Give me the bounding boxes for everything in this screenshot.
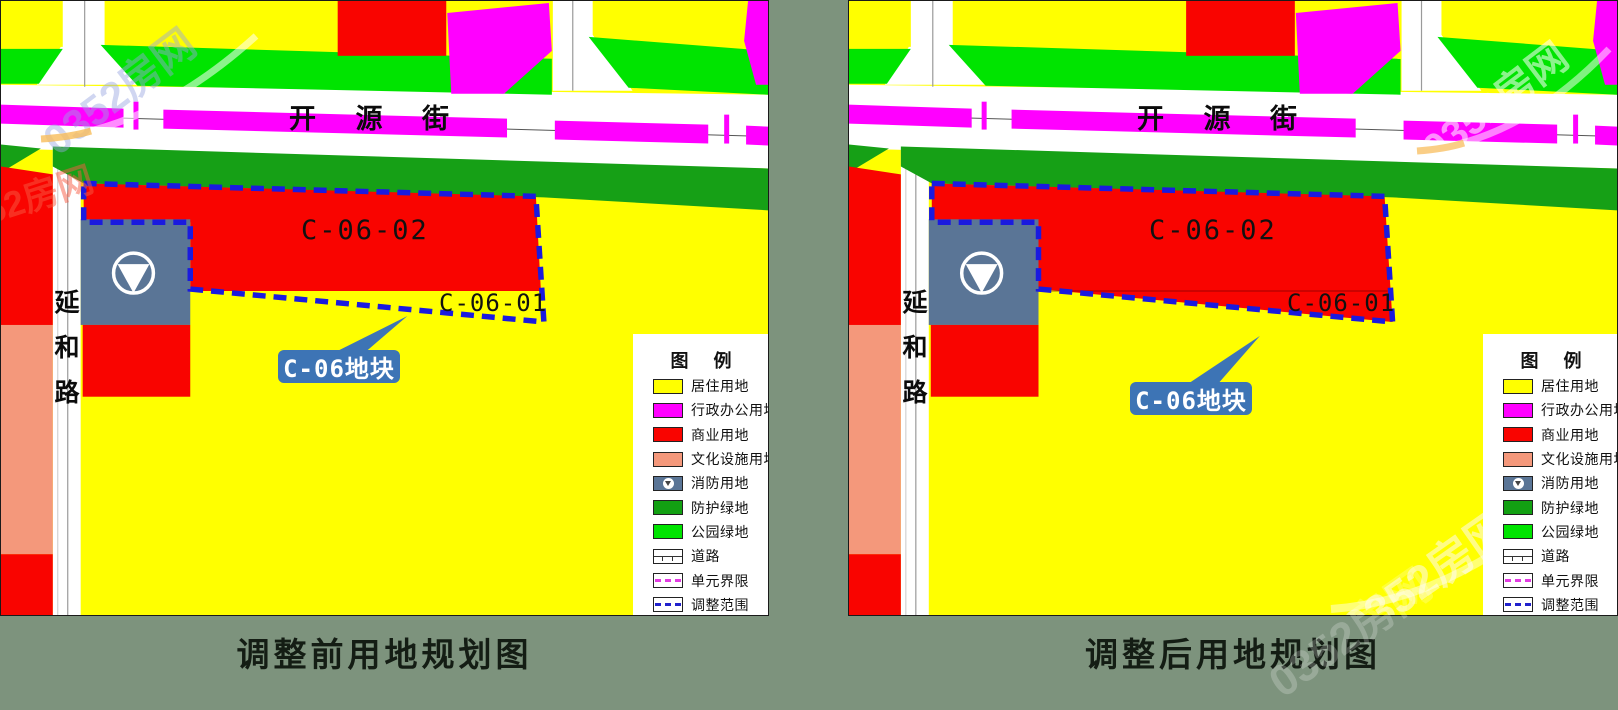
commercial-swatch	[1503, 427, 1533, 442]
park-green-swatch	[1503, 524, 1533, 539]
road-swatch	[653, 549, 683, 564]
legend-item-road: 道路	[633, 544, 769, 568]
legend-box: 图 例 居住用地 行政办公用地 商业用地 文化设施用地 消防用地 防护绿地	[633, 334, 769, 616]
admin-office-swatch	[1503, 403, 1533, 418]
legend-item-unit-boundary: 单元界限	[633, 568, 769, 592]
cultural-swatch	[1503, 452, 1533, 467]
planning-map-comparison: { "map": { "street_label": "开 源 街", "roa…	[0, 0, 1618, 681]
map-panel-after: 0352房网 0352房网 开 源 街 延和路 C-06-02 C-06-01 …	[848, 0, 1618, 616]
parcel-label-c0601: C-06-01	[1287, 289, 1395, 317]
legend-item-admin-office: 行政办公用地	[1483, 398, 1618, 422]
protective-green-swatch	[1503, 500, 1533, 515]
street-label-kaiyuan: 开 源 街	[289, 97, 465, 136]
parcel-callout: C-06地块	[278, 350, 400, 383]
legend-item-cultural: 文化设施用地	[1483, 447, 1618, 471]
street-label-kaiyuan: 开 源 街	[1137, 97, 1313, 136]
residential-swatch	[653, 379, 683, 394]
legend-item-residential: 居住用地	[633, 374, 769, 398]
residential-swatch	[1503, 379, 1533, 394]
fire-swatch	[653, 476, 683, 491]
legend-item-park-green: 公园绿地	[1483, 520, 1618, 544]
protective-green-swatch	[653, 500, 683, 515]
parcel-label-c0601: C-06-01	[439, 289, 547, 317]
legend-item-adjustment-scope: 调整范围	[633, 593, 769, 616]
map-panel-before: 0352房网 0352房网 开 源 街 延和路 C-06-02 C-06-01 …	[0, 0, 769, 616]
legend-item-admin-office: 行政办公用地	[633, 398, 769, 422]
parcel-label-c0602: C-06-02	[1149, 215, 1277, 246]
legend-title: 图 例	[633, 347, 769, 373]
caption-after-adjustment: 调整后用地规划图	[848, 628, 1618, 676]
fire-swatch-icon	[1513, 478, 1524, 489]
parcel-callout: C-06地块	[1130, 382, 1252, 415]
legend-item-adjustment-scope: 调整范围	[1483, 593, 1618, 616]
fire-swatch	[1503, 476, 1533, 491]
road-swatch	[1503, 549, 1533, 564]
legend-box: 图 例 居住用地 行政办公用地 商业用地 文化设施用地 消防用地 防护绿地	[1483, 334, 1618, 616]
legend-item-cultural: 文化设施用地	[633, 447, 769, 471]
legend-item-protective-green: 防护绿地	[633, 495, 769, 519]
unit-boundary-swatch	[1503, 573, 1533, 588]
road-label-yanhe: 延和路	[51, 289, 79, 424]
adjustment-scope-swatch	[1503, 597, 1533, 612]
legend-title: 图 例	[1483, 347, 1618, 373]
unit-boundary-swatch	[653, 573, 683, 588]
legend-item-commercial: 商业用地	[633, 423, 769, 447]
commercial-swatch	[653, 427, 683, 442]
legend-item-residential: 居住用地	[1483, 374, 1618, 398]
legend-item-commercial: 商业用地	[1483, 423, 1618, 447]
parcel-label-c0602: C-06-02	[301, 215, 429, 246]
adjustment-scope-swatch	[653, 597, 683, 612]
legend-item-unit-boundary: 单元界限	[1483, 568, 1618, 592]
fire-swatch-icon	[663, 478, 674, 489]
legend-item-park-green: 公园绿地	[633, 520, 769, 544]
legend-item-protective-green: 防护绿地	[1483, 495, 1618, 519]
road-label-yanhe: 延和路	[899, 289, 927, 424]
park-green-swatch	[653, 524, 683, 539]
admin-office-swatch	[653, 403, 683, 418]
caption-before-adjustment: 调整前用地规划图	[0, 628, 769, 676]
cultural-swatch	[653, 452, 683, 467]
legend-item-fire: 消防用地	[633, 471, 769, 495]
legend-item-road: 道路	[1483, 544, 1618, 568]
legend-item-fire: 消防用地	[1483, 471, 1618, 495]
